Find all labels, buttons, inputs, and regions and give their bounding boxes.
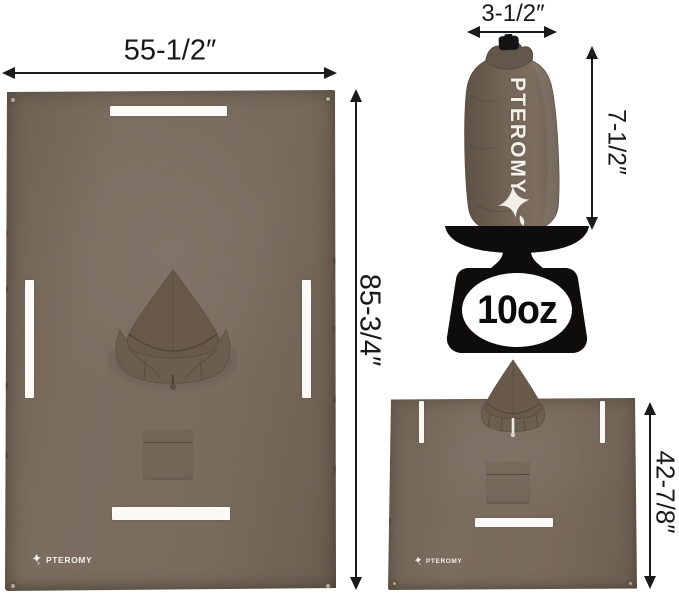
reflective-strip-right (302, 280, 311, 398)
tie-loop (333, 466, 337, 473)
grommet (391, 580, 398, 587)
tie-loop (333, 396, 337, 403)
tie-loop (4, 382, 8, 389)
sack-height-label: 7-1/2″ (602, 109, 631, 175)
poncho-hood-icon (472, 358, 554, 442)
pocket-seam (486, 474, 530, 475)
brand-star-icon (413, 556, 423, 566)
grommet (324, 95, 332, 103)
grommet (627, 580, 634, 587)
storage-pocket (486, 460, 530, 504)
tarp-width-dimension-arrow (2, 66, 337, 79)
reflective-strip-top (110, 106, 227, 116)
tie-loop (4, 452, 8, 459)
reflective-strip-bottom (475, 518, 553, 527)
dimension-line (591, 56, 593, 220)
tarp-width-label: 55-1/2″ (124, 35, 217, 68)
tie-loop (4, 286, 8, 293)
reflective-strip-left (419, 401, 424, 443)
brand-logo-text: PTEROMY (426, 558, 462, 565)
arrowhead-right-icon (324, 67, 337, 79)
arrowhead-down-icon (644, 576, 656, 589)
brand-logo-text: PTEROMY (46, 555, 92, 565)
grommet (9, 96, 17, 104)
sack-height-dimension-arrow (585, 46, 599, 230)
reflective-strip-left (25, 280, 34, 398)
arrowhead-down-icon (350, 577, 362, 590)
arrowhead-up-icon (350, 89, 362, 102)
reflective-strip-bottom (112, 507, 230, 520)
tie-loop (4, 230, 8, 237)
poncho-height-label: 42-7/8″ (650, 451, 679, 534)
tie-loop (333, 326, 337, 333)
arrowhead-up-icon (586, 46, 598, 59)
grommet (9, 582, 17, 590)
pocket-seam (143, 442, 193, 443)
reflective-strip-right (600, 401, 605, 443)
tie-loop (333, 258, 337, 265)
arrowhead-up-icon (644, 402, 656, 415)
brand-logo: PTEROMY (413, 556, 462, 566)
arrowhead-left-icon (2, 67, 15, 79)
sack-brand-text: PTEROMY (505, 77, 529, 195)
sack-width-label: 3-1/2″ (481, 0, 544, 28)
brand-star-icon (30, 553, 43, 566)
storage-pocket (143, 428, 193, 480)
tarp-height-label: 85-3/4″ (353, 274, 386, 367)
dimension-line (12, 72, 327, 74)
brand-logo: PTEROMY (30, 553, 92, 566)
product-dimensions-image: 55-1/2″ PTEROMY (0, 0, 679, 596)
tarp-hood-icon (108, 268, 238, 394)
tie-loop (387, 518, 391, 524)
weight-value: 10oz (461, 288, 574, 332)
tie-loop (387, 458, 391, 464)
grommet (324, 582, 332, 590)
